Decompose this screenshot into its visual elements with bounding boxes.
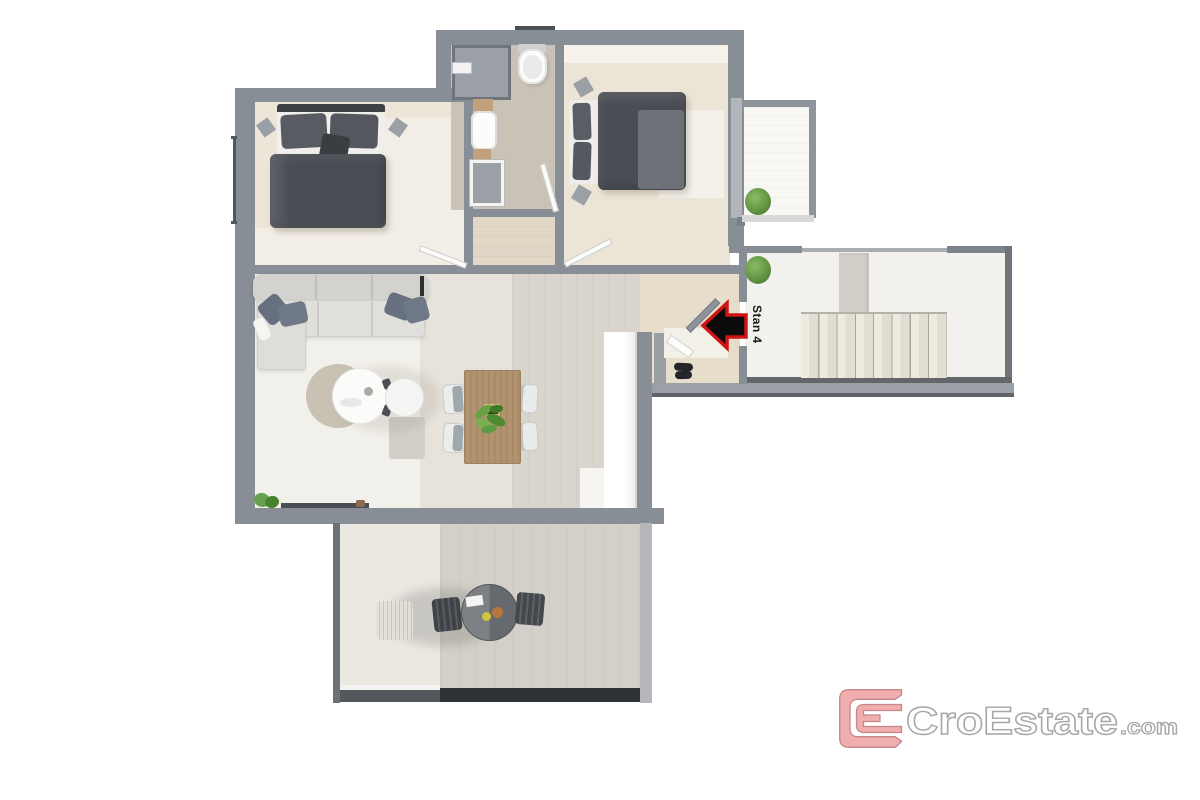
svg-text:.com: .com (1120, 716, 1178, 739)
svg-text:CroEstate: CroEstate (906, 700, 1118, 743)
